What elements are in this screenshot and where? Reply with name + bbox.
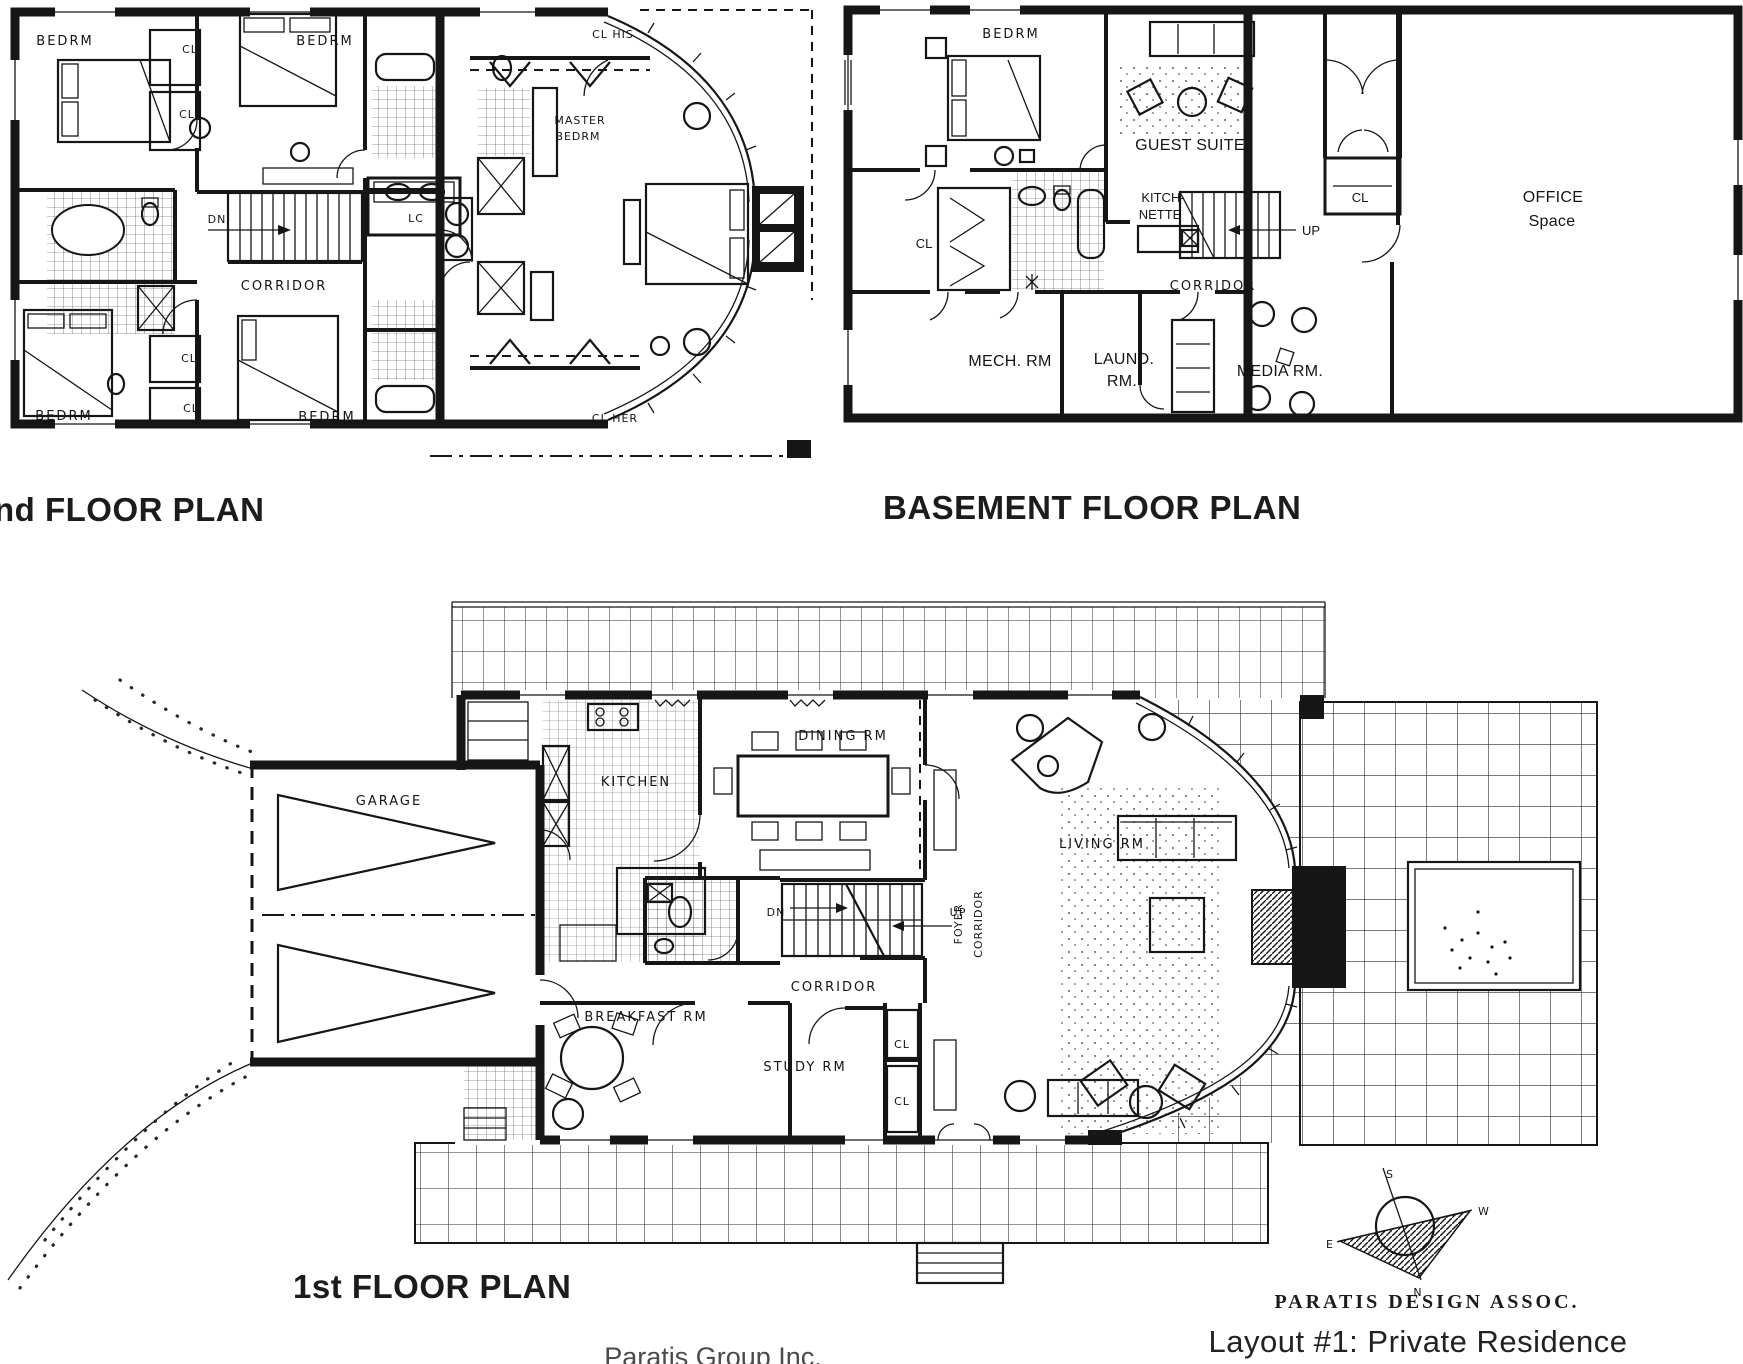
basement-title: BASEMENT FLOOR PLAN (883, 489, 1301, 526)
stairs-down (208, 193, 362, 261)
room-label-bedrm-nw: BEDRM (36, 34, 93, 49)
corridor-label-basement: CORRIDOR (1170, 279, 1256, 294)
driveway (8, 680, 255, 1288)
breakfast-room-label: BREAKFAST RM (584, 1010, 707, 1025)
stairs-dn-label-second: DN (208, 213, 227, 226)
corridor-label-first: CORRIDOR (791, 980, 877, 995)
mudroom-stoop (464, 1066, 538, 1140)
basement-plan: BEDRM GUEST SUITE KITCH- NETTE CL CL UP … (843, 5, 1743, 526)
garage-label: GARAGE (356, 794, 422, 809)
basement-bedroom-furniture (926, 38, 1040, 166)
company-credit: Paratis Group Inc. (604, 1342, 822, 1364)
laundry-label-1: LAUND. (1094, 351, 1154, 368)
mech-room-label: MECH. RM (968, 353, 1051, 370)
closet-label-4: CL (183, 402, 199, 415)
closet-label-3: CL (181, 352, 197, 365)
compass-south-label: S (1386, 1168, 1394, 1181)
master-chimney (752, 186, 804, 272)
compass-rose: S W E N (1326, 1168, 1490, 1299)
powder-bath (648, 880, 736, 962)
master-bedrm-label-2: BEDRM (555, 130, 600, 143)
basement-entry-vestibule (1325, 60, 1400, 262)
closet-label-upper: CL (894, 1038, 910, 1051)
first-floor-plan: GARAGE KITCHEN DINING RM BREAKFAST RM ST… (8, 602, 1597, 1305)
layout-caption: Layout #1: Private Residence (1209, 1324, 1628, 1359)
foyer-label-2: CORRIDOR (972, 890, 985, 958)
office-label-2: Space (1529, 213, 1576, 230)
stairs-dn-label-first: DN (767, 906, 786, 919)
room-label-bedrm-se: BEDRM (298, 410, 355, 425)
compass-west-label: W (1478, 1205, 1490, 1218)
kitchen-label: KITCHEN (601, 775, 671, 790)
closet-label-1: CL (182, 43, 198, 56)
kitchenette-label-1: KITCH- (1141, 190, 1184, 205)
room-label-bedrm-ne: BEDRM (296, 34, 353, 49)
guest-suite-furniture (1120, 22, 1254, 136)
basement-closet-label: CL (916, 236, 933, 251)
kitchenette-label-2: NETTE (1139, 207, 1182, 222)
patio-pool (1408, 862, 1580, 990)
study-room-label: STUDY RM (763, 1060, 846, 1075)
lc-label: LC (408, 212, 424, 225)
entry-closet-label: CL (1352, 190, 1369, 205)
room-label-bedrm-sw: BEDRM (35, 409, 92, 424)
stairs-up-label: UP (1302, 223, 1320, 238)
closet-his-label: CL HIS (592, 28, 634, 41)
floor-plan-sheet: BEDRM BEDRM BEDRM BEDRM CL CL CL CL LC C… (0, 0, 1743, 1364)
second-floor-plan: BEDRM BEDRM BEDRM BEDRM CL CL CL CL LC C… (0, 7, 812, 528)
stairs-up-label-first: UP (950, 906, 967, 919)
guest-suite-label: GUEST SUITE (1135, 137, 1245, 154)
dining-room-label: DINING RM (798, 729, 888, 744)
second-floor-title: nd FLOOR PLAN (0, 491, 264, 528)
living-room-label: LIVING RM (1059, 837, 1145, 852)
basement-windows (843, 5, 1743, 385)
closet-label-lower: CL (894, 1095, 910, 1108)
floor-plan-drawing: BEDRM BEDRM BEDRM BEDRM CL CL CL CL LC C… (0, 0, 1743, 1364)
master-bedrm-label-1: MASTER (554, 114, 605, 127)
laundry-label-2: RM. (1107, 373, 1137, 390)
office-label-1: OFFICE (1523, 189, 1583, 206)
deck-steps (917, 1243, 1003, 1283)
design-firm-credit: PARATIS DESIGN ASSOC. (1274, 1291, 1579, 1313)
lower-deck (415, 1143, 1268, 1243)
closet-her-label: CL HER (592, 412, 638, 425)
basement-bedrm-label: BEDRM (982, 27, 1039, 42)
compass-east-label: E (1326, 1238, 1334, 1251)
corridor-label-second: CORRIDOR (241, 279, 327, 294)
porch-column (787, 440, 811, 458)
closet-label-2: CL (179, 108, 195, 121)
upper-deck (452, 607, 1325, 698)
media-room-label: MEDIA RM. (1237, 363, 1323, 380)
first-floor-title: 1st FLOOR PLAN (293, 1268, 571, 1305)
